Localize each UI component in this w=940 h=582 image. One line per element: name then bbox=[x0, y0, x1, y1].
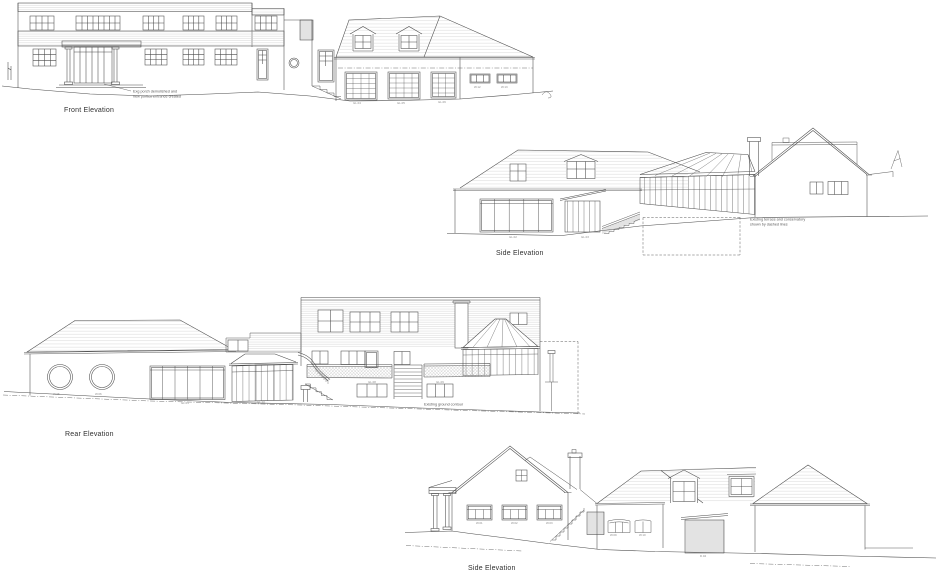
stair-balustrade bbox=[587, 512, 604, 535]
garage-windows bbox=[470, 74, 517, 83]
ref-code: W.06 bbox=[95, 393, 102, 396]
chimney bbox=[453, 301, 470, 348]
steps bbox=[305, 384, 333, 400]
ref-code: W.02 bbox=[511, 522, 518, 525]
rooflight bbox=[510, 164, 526, 181]
terrace-balustrade bbox=[307, 364, 490, 379]
right-dashed-extent bbox=[540, 342, 578, 416]
arched-windows bbox=[608, 520, 651, 533]
middle-house bbox=[595, 468, 756, 554]
right-garage bbox=[750, 465, 870, 552]
existing-terrace-dashed bbox=[643, 217, 740, 255]
eaves-extension bbox=[869, 172, 893, 178]
bifold-doors bbox=[150, 366, 225, 400]
rear-door bbox=[365, 351, 378, 368]
ref-code: GL.08 bbox=[368, 381, 376, 384]
ref-code: GL.01 bbox=[181, 402, 189, 405]
ground-contour-annotation: Existing ground contour bbox=[424, 403, 463, 408]
ref-code: W.12 bbox=[474, 86, 481, 89]
front-annotation: Exg porch demolished and new portico ent… bbox=[133, 90, 181, 100]
right-house bbox=[748, 128, 903, 217]
flue bbox=[548, 351, 555, 354]
chimney bbox=[568, 450, 582, 490]
antenna bbox=[891, 151, 902, 170]
shrub bbox=[542, 92, 551, 98]
ref-code: W.13 bbox=[501, 86, 508, 89]
portico bbox=[56, 41, 146, 88]
ref-code: W.10 bbox=[639, 534, 646, 537]
glazed-link bbox=[560, 190, 606, 233]
windows bbox=[810, 182, 848, 195]
external-stairs bbox=[550, 508, 604, 542]
ref-code: GL.04 bbox=[353, 102, 361, 105]
ground-contour-dashed bbox=[3, 395, 585, 414]
ref-code: GL.02 bbox=[509, 236, 517, 239]
ref-code: GL.03 bbox=[581, 236, 589, 239]
side-elevation-lower-drawing bbox=[400, 440, 940, 575]
ground-floor-windows bbox=[33, 49, 237, 66]
ref-code: W.05 bbox=[53, 393, 60, 396]
drawing-sheet: Front Elevation Side Elevation Rear Elev… bbox=[0, 0, 940, 582]
main-house-rear bbox=[301, 298, 540, 412]
ref-code: GL.10 bbox=[257, 401, 265, 404]
ground-line bbox=[447, 216, 928, 236]
terrace-steps bbox=[394, 365, 422, 399]
ref-code: GL.06 bbox=[438, 101, 446, 104]
rear-elevation-title: Rear Elevation bbox=[65, 431, 114, 438]
side-elevation-upper-drawing bbox=[430, 118, 940, 268]
upper-windows bbox=[30, 16, 277, 30]
gate-post bbox=[8, 62, 11, 80]
ref-code: W.03 bbox=[546, 522, 553, 525]
ref-code: W.09 bbox=[610, 534, 617, 537]
circular-window bbox=[48, 365, 73, 390]
main-gable-house bbox=[449, 446, 598, 540]
left-wing bbox=[24, 320, 236, 400]
chimney bbox=[748, 138, 761, 177]
rear-elevation-drawing bbox=[0, 280, 600, 430]
side-upper-annotation: Existing terrace and conservatory shown … bbox=[750, 218, 805, 228]
ref-code: D.04 bbox=[700, 555, 706, 558]
ref-code: GL.05 bbox=[397, 102, 405, 105]
ground-line bbox=[405, 531, 936, 558]
slatted-porch bbox=[681, 514, 728, 554]
circular-window bbox=[90, 365, 115, 390]
ref-code: W.01 bbox=[476, 522, 483, 525]
link-block bbox=[284, 20, 341, 99]
side-elevation-upper-title: Side Elevation bbox=[496, 250, 544, 257]
front-elevation-title: Front Elevation bbox=[64, 107, 114, 114]
bifold-doors bbox=[455, 189, 553, 233]
side-elevation-lower-title: Side Elevation bbox=[468, 565, 516, 572]
main-house-front bbox=[18, 3, 341, 99]
side-door bbox=[257, 49, 268, 80]
rooflight bbox=[727, 474, 756, 497]
front-elevation-drawing bbox=[0, 0, 560, 118]
ground-line bbox=[2, 86, 553, 101]
garage-doors bbox=[345, 72, 456, 100]
windows bbox=[467, 505, 562, 520]
roof-vent bbox=[783, 138, 789, 143]
ref-code: GL.09 bbox=[436, 381, 444, 384]
garage-block bbox=[334, 16, 551, 101]
rear-link bbox=[226, 333, 301, 402]
terrace-steps bbox=[602, 212, 640, 234]
